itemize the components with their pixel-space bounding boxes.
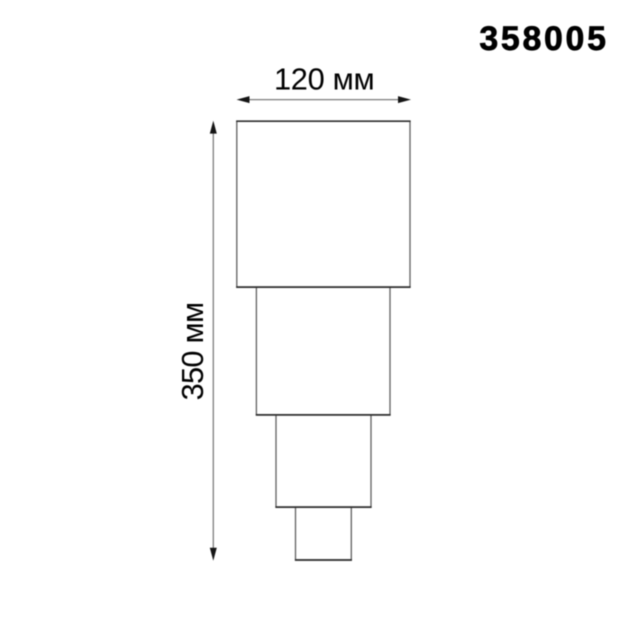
svg-text:358005: 358005 [479, 20, 608, 58]
svg-text:120 мм: 120 мм [274, 62, 375, 97]
svg-text:350 мм: 350 мм [175, 303, 210, 401]
